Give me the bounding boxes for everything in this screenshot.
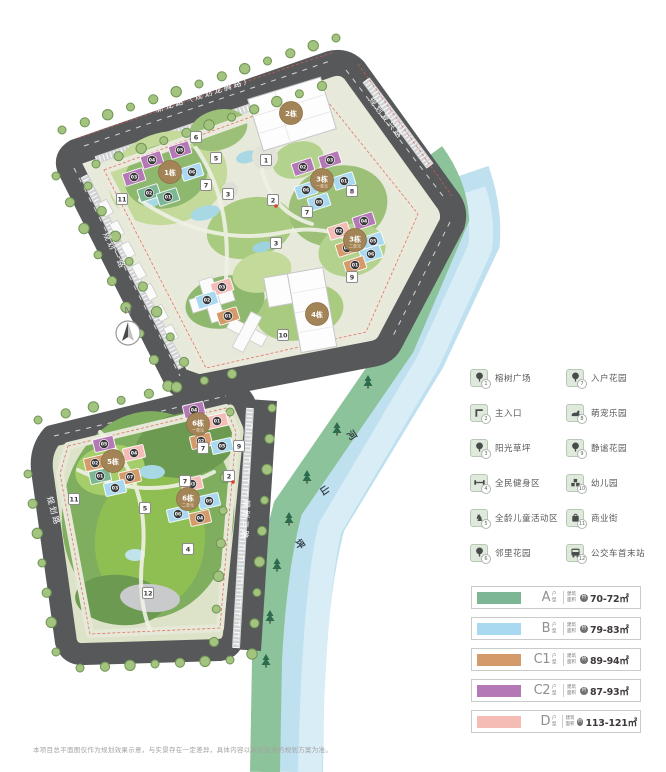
gate-icon: 2 <box>470 404 488 422</box>
street-tree-icon <box>272 96 282 106</box>
legend-number: 2 <box>481 414 491 424</box>
unit-type-row-c1: C1 户型 建筑面积 约 89-94㎡ <box>471 648 641 671</box>
amenity-badge: 5 <box>211 153 222 164</box>
street-tree-icon <box>332 34 340 42</box>
svg-text:01: 01 <box>225 314 231 320</box>
site-plan-poster: 0504030201060203010605040205060301030201… <box>0 0 666 772</box>
type-color-swatch <box>477 623 521 635</box>
street-tree-icon <box>253 589 261 597</box>
legend-item: 6 邻里花园 <box>470 535 566 570</box>
legend-number: 12 <box>577 554 587 564</box>
unit-type-legend: A 户型 建筑面积 约 70-72㎡ B 户型 建筑面积 约 79-83㎡ C1… <box>471 586 641 741</box>
building-cluster-marker: 4栋 <box>306 303 329 326</box>
street-tree-icon <box>217 72 226 81</box>
amenity-badge: 9 <box>234 441 245 452</box>
street-tree-icon <box>308 41 318 51</box>
svg-text:2: 2 <box>271 196 276 204</box>
area-label: 建筑面积 <box>566 716 575 727</box>
legend-label: 邻里花园 <box>495 547 531 559</box>
street-tree-icon <box>240 63 250 73</box>
svg-text:12: 12 <box>143 589 152 597</box>
building-cluster-marker: 3栋二单元 <box>344 229 367 252</box>
street-tree-icon <box>58 126 66 134</box>
amenity-badge: 12 <box>143 588 154 599</box>
street-tree-icon <box>212 605 220 613</box>
street-tree-icon <box>228 113 236 121</box>
street-tree-icon <box>107 276 116 285</box>
amenity-badge: 7 <box>180 476 191 487</box>
shop-icon: 11 <box>566 509 584 527</box>
street-tree-icon <box>97 207 106 216</box>
divider <box>563 591 564 604</box>
street-tree-icon <box>179 357 188 366</box>
unit-label: 户型 <box>552 654 560 664</box>
divider <box>562 715 563 728</box>
svg-text:05: 05 <box>370 239 376 245</box>
svg-text:7: 7 <box>305 208 310 216</box>
street-tree-icon <box>250 619 259 628</box>
legend-label: 幼儿园 <box>591 477 618 489</box>
unit-label: 户型 <box>552 685 560 695</box>
street-tree-icon <box>38 559 46 567</box>
amenity-badge: 6 <box>191 132 202 143</box>
legend-number: 3 <box>481 449 491 459</box>
amenity-badge: 5 <box>140 503 151 514</box>
street-tree-icon <box>125 660 135 670</box>
svg-text:7: 7 <box>183 477 188 485</box>
street-tree-icon <box>195 80 203 88</box>
building-cluster-marker: 6栋一单元 <box>187 413 210 436</box>
legend-number: 1 <box>481 379 491 389</box>
legend-label: 榕树广场 <box>495 372 531 384</box>
rocking-horse-icon: ♞ 5 <box>470 509 488 527</box>
bus-icon: 12 <box>566 544 584 562</box>
street-tree-icon <box>262 464 272 474</box>
amenity-legend: 1 榕树广场 2 主入口 3 阳光草坪 4 全民健身区 ♞ 5 全龄儿 <box>470 360 666 570</box>
svg-text:7: 7 <box>201 444 206 452</box>
svg-text:02: 02 <box>92 461 98 467</box>
kindergarten-icon: 10 <box>566 474 584 492</box>
svg-text:05: 05 <box>219 444 225 450</box>
legend-item: 1 榕树广场 <box>470 360 566 395</box>
svg-text:1: 1 <box>264 156 269 164</box>
legend-item: 9 静谧花园 <box>566 430 666 465</box>
street-tree-icon <box>209 637 218 646</box>
tree-icon: 7 <box>566 369 584 387</box>
svg-text:02: 02 <box>204 298 210 304</box>
svg-text:01: 01 <box>352 263 358 269</box>
svg-text:02: 02 <box>336 229 342 235</box>
svg-text:一单元: 一单元 <box>192 427 204 433</box>
tree-icon: 6 <box>470 544 488 562</box>
street-tree-icon <box>317 81 326 90</box>
compass-n-label: N <box>124 306 131 317</box>
tree-icon: 3 <box>470 439 488 457</box>
legend-column-2: 7 入户花园 8 萌宠乐园 9 静谧花园 10 幼儿园 11 商业街 <box>566 360 666 570</box>
legend-label: 公交车首末站 <box>591 547 645 559</box>
street-tree-icon <box>227 369 236 378</box>
area-label: 建筑面积 <box>567 592 578 603</box>
amenity-badge: 10 <box>278 330 289 341</box>
divider <box>563 653 564 666</box>
svg-text:01: 01 <box>341 179 347 185</box>
svg-text:3栋: 3栋 <box>316 175 328 184</box>
area-value: 113-121㎡ <box>585 715 637 729</box>
street-tree-icon <box>34 416 42 424</box>
area-label: 建筑面积 <box>567 685 578 696</box>
svg-text:05: 05 <box>206 499 212 505</box>
legend-number: 7 <box>577 379 587 389</box>
type-code: C2 <box>528 683 550 698</box>
approx-badge: 约 <box>580 656 588 664</box>
street-tree-icon <box>200 377 208 385</box>
area-value: 70-72㎡ <box>590 591 629 605</box>
street-tree-icon <box>160 137 168 145</box>
street-tree-icon <box>286 49 295 58</box>
street-tree-icon <box>46 617 56 627</box>
street-tree-icon <box>219 507 227 515</box>
area-label: 建筑面积 <box>567 623 578 634</box>
svg-text:6栋: 6栋 <box>182 494 194 503</box>
street-tree-icon <box>213 571 223 581</box>
fitness-icon: 4 <box>470 474 488 492</box>
amenity-badge: 11 <box>117 194 128 205</box>
street-tree-icon <box>127 103 135 111</box>
street-tree-icon <box>216 539 225 548</box>
divider <box>563 684 564 697</box>
type-code: A <box>528 590 550 605</box>
svg-text:01: 01 <box>165 195 171 201</box>
building-cluster-marker: 2栋 <box>280 102 303 125</box>
street-tree-icon <box>226 408 234 416</box>
street-tree-icon <box>114 152 123 161</box>
svg-text:11: 11 <box>69 495 79 503</box>
unit-type-row-b: B 户型 建筑面积 约 79-83㎡ <box>471 617 641 640</box>
unit-type-row-a: A 户型 建筑面积 约 70-72㎡ <box>471 586 641 609</box>
svg-text:06: 06 <box>175 512 181 518</box>
street-tree-icon <box>171 87 181 97</box>
pond <box>139 465 165 479</box>
unit-label: 户型 <box>552 716 559 726</box>
approx-badge: 约 <box>580 594 588 602</box>
unit-type-row-d: D 户型 建筑面积 约 113-121㎡ <box>471 710 641 733</box>
svg-text:11: 11 <box>117 195 127 203</box>
legend-item: 4 全民健身区 <box>470 465 566 500</box>
legend-number: 11 <box>577 519 587 529</box>
tree-icon: 9 <box>566 439 584 457</box>
svg-text:03: 03 <box>131 175 137 181</box>
building-cluster-marker: 3栋一单元 <box>311 169 334 192</box>
disclaimer-text: 本项目总平面图仅作为规划效果示意，与实景存在一定差异，具体内容以政府批准的规划方… <box>33 744 332 754</box>
amenity-badge: 1 <box>261 155 272 166</box>
svg-text:7: 7 <box>204 181 209 189</box>
street-tree-icon <box>226 656 234 664</box>
legend-item: 3 阳光草坪 <box>470 430 566 465</box>
street-tree-icon <box>52 172 60 180</box>
type-color-swatch <box>477 716 521 728</box>
svg-text:04: 04 <box>149 158 155 164</box>
legend-label: 主入口 <box>495 407 522 419</box>
svg-text:1栋: 1栋 <box>164 168 176 177</box>
street-tree-icon <box>76 664 84 672</box>
svg-text:5: 5 <box>143 504 148 512</box>
street-tree-icon <box>250 105 259 114</box>
type-color-swatch <box>477 592 521 604</box>
amenity-badge: 7 <box>302 207 313 218</box>
svg-text:9: 9 <box>350 273 355 281</box>
street-tree-icon <box>80 118 89 127</box>
street-tree-icon <box>100 662 109 671</box>
building-cluster-marker: 6栋二单元 <box>177 488 200 511</box>
svg-text:06: 06 <box>189 170 195 176</box>
legend-label: 入户花园 <box>591 372 627 384</box>
street-tree-icon <box>151 660 159 668</box>
amenity-badge: 11 <box>69 494 80 505</box>
amenity-badge: 7 <box>201 180 212 191</box>
legend-item: 7 入户花园 <box>566 360 666 395</box>
legend-number: 6 <box>481 554 491 564</box>
svg-text:二单元: 二单元 <box>182 502 194 508</box>
street-tree-icon <box>257 526 266 535</box>
street-tree-icon <box>204 120 214 130</box>
svg-text:二单元: 二单元 <box>349 243 361 249</box>
svg-text:一单元: 一单元 <box>316 183 328 189</box>
street-tree-icon <box>24 470 32 478</box>
svg-text:01: 01 <box>214 419 220 425</box>
street-tree-icon <box>79 223 89 233</box>
street-tree-icon <box>61 409 70 418</box>
street-tree-icon <box>175 658 184 667</box>
legend-number: 4 <box>481 484 491 494</box>
legend-label: 阳光草坪 <box>495 442 531 454</box>
area-value: 79-83㎡ <box>590 622 629 636</box>
street-tree-icon <box>265 434 274 443</box>
svg-text:3: 3 <box>274 239 279 247</box>
street-tree-icon <box>94 251 102 259</box>
amenity-badge: 7 <box>198 443 209 454</box>
street-tree-icon <box>136 143 146 153</box>
svg-text:5: 5 <box>214 154 219 162</box>
legend-column-1: 1 榕树广场 2 主入口 3 阳光草坪 4 全民健身区 ♞ 5 全龄儿 <box>470 360 566 570</box>
street-tree-icon <box>264 57 272 65</box>
street-tree-icon <box>65 198 74 207</box>
legend-label: 静谧花园 <box>591 442 627 454</box>
building-cluster-marker: 1栋 <box>159 161 182 184</box>
amenity-badge: 9 <box>347 272 358 283</box>
svg-text:3: 3 <box>226 190 231 198</box>
amenity-badge: 3 <box>271 238 282 249</box>
type-color-swatch <box>477 685 521 697</box>
amenity-badge: 8 <box>347 186 358 197</box>
legend-item: ♞ 5 全龄儿童活动区 <box>470 500 566 535</box>
svg-text:05: 05 <box>316 200 322 206</box>
street-tree-icon <box>171 382 181 392</box>
street-tree-icon <box>254 557 264 567</box>
street-tree-icon <box>247 649 257 659</box>
svg-text:03: 03 <box>327 158 333 164</box>
street-tree-icon <box>151 307 161 317</box>
street-tree-icon <box>92 160 100 168</box>
street-tree-icon <box>28 499 37 508</box>
street-tree-icon <box>52 648 60 656</box>
svg-text:5栋: 5栋 <box>107 457 119 466</box>
street-tree-icon <box>88 402 98 412</box>
amenity-badge: 2 <box>268 195 279 206</box>
street-tree-icon <box>32 528 42 538</box>
area-value: 87-93㎡ <box>590 684 629 698</box>
svg-text:10: 10 <box>278 331 288 339</box>
legend-item: 2 主入口 <box>470 395 566 430</box>
amenity-badge: 4 <box>183 544 194 555</box>
area-label: 建筑面积 <box>567 654 578 665</box>
svg-text:6: 6 <box>194 133 199 141</box>
unit-type-row-c2: C2 户型 建筑面积 约 87-93㎡ <box>471 679 641 702</box>
amenity-badge: 3 <box>223 189 234 200</box>
type-color-swatch <box>477 654 521 666</box>
svg-text:03: 03 <box>219 285 225 291</box>
legend-label: 全龄儿童活动区 <box>495 512 558 524</box>
svg-text:3栋: 3栋 <box>349 235 361 244</box>
street-tree-icon <box>200 656 210 666</box>
area-value: 89-94㎡ <box>590 653 629 667</box>
svg-text:6栋: 6栋 <box>192 419 204 428</box>
street-tree-icon <box>138 282 147 291</box>
legend-item: 11 商业街 <box>566 500 666 535</box>
approx-badge: 约 <box>580 625 588 633</box>
svg-text:06: 06 <box>303 188 309 194</box>
street-tree-icon <box>182 128 191 137</box>
street-tree-icon <box>261 496 269 504</box>
unit-label: 户型 <box>552 592 560 602</box>
legend-number: 9 <box>577 449 587 459</box>
divider <box>563 622 564 635</box>
type-code: B <box>528 621 550 636</box>
approx-badge: 约 <box>580 687 588 695</box>
legend-number: 5 <box>481 519 491 529</box>
unit-label: 户型 <box>552 623 560 633</box>
tree-icon: 1 <box>470 369 488 387</box>
legend-number: 8 <box>577 414 587 424</box>
street-tree-icon <box>42 588 51 597</box>
pet-icon: 8 <box>566 404 584 422</box>
svg-text:4: 4 <box>186 545 191 553</box>
svg-text:04: 04 <box>361 219 367 225</box>
legend-label: 全民健身区 <box>495 477 540 489</box>
svg-text:9: 9 <box>237 442 242 450</box>
svg-text:07: 07 <box>127 475 133 481</box>
legend-item: 12 公交车首末站 <box>566 535 666 570</box>
svg-text:04: 04 <box>197 516 203 522</box>
type-code: C1 <box>528 652 550 667</box>
svg-text:4栋: 4栋 <box>311 310 323 319</box>
svg-text:06: 06 <box>368 252 374 258</box>
street-tree-icon <box>295 90 303 98</box>
street-tree-icon <box>268 404 276 412</box>
svg-text:2栋: 2栋 <box>285 109 297 118</box>
svg-text:05: 05 <box>177 148 183 154</box>
legend-item: 8 萌宠乐园 <box>566 395 666 430</box>
svg-text:01: 01 <box>97 474 103 480</box>
type-code: D <box>528 714 550 729</box>
street-tree-icon <box>149 355 158 364</box>
street-tree-icon <box>149 95 158 104</box>
amenity-badge: 2 <box>224 471 235 482</box>
svg-text:05: 05 <box>101 442 107 448</box>
svg-text:03: 03 <box>112 486 118 492</box>
svg-text:04: 04 <box>131 451 137 457</box>
legend-label: 萌宠乐园 <box>591 407 627 419</box>
street-tree-icon <box>103 110 113 120</box>
legend-number: 10 <box>577 484 587 494</box>
street-tree-icon <box>166 333 174 341</box>
svg-text:02: 02 <box>300 165 306 171</box>
svg-text:2: 2 <box>227 472 232 480</box>
street-tree-icon <box>84 182 92 190</box>
svg-text:8: 8 <box>350 187 355 195</box>
street-tree-icon <box>144 389 153 398</box>
svg-text:02: 02 <box>146 191 152 197</box>
building-cluster-marker: 5栋 <box>102 450 125 473</box>
legend-item: 10 幼儿园 <box>566 465 666 500</box>
street-tree-icon <box>117 396 125 404</box>
legend-label: 商业街 <box>591 512 618 524</box>
approx-badge: 约 <box>577 718 584 726</box>
